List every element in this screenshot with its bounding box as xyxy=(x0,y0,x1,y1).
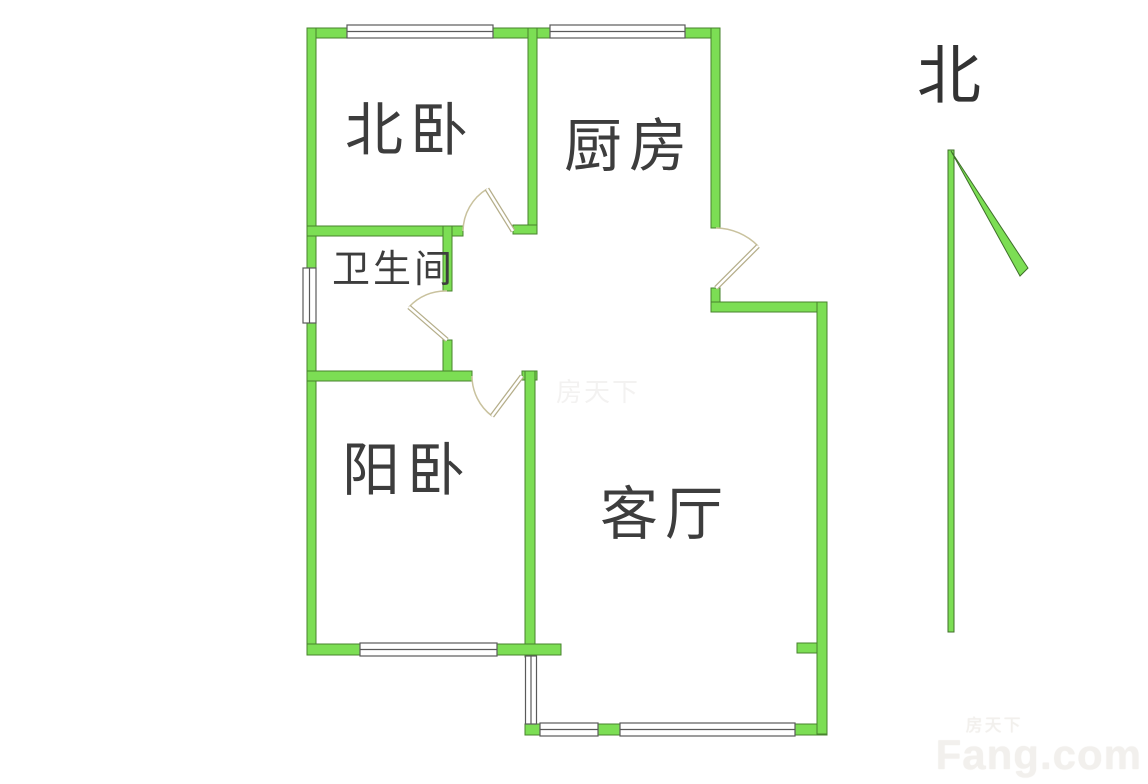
wall-livingroom-right xyxy=(817,302,827,734)
wall-sunbedroom-right xyxy=(525,371,535,657)
door-sun-bedroom-icon xyxy=(472,376,522,416)
wall-bedroom-kitchen-divider xyxy=(528,28,537,233)
compass-north-label: 北 xyxy=(917,44,981,108)
wall-balcony-right-stub xyxy=(797,643,817,653)
floorplan-canvas: 北卧 厨房 卫生间 阳卧 客厅 北 房天下 房天下 Fang.com xyxy=(0,0,1148,784)
wall-bathroom-bottom xyxy=(307,371,472,381)
room-label-kitchen: 厨房 xyxy=(564,118,694,176)
wall-left-exterior xyxy=(307,28,316,655)
door-north-bedroom-icon xyxy=(463,189,513,231)
wall-kitchen-right xyxy=(711,28,720,228)
wall-livingroom-top xyxy=(711,302,827,312)
door-bathroom-icon xyxy=(409,291,447,340)
room-label-living-room: 客厅 xyxy=(600,486,730,544)
wall-bedroom-bottom xyxy=(307,226,463,236)
center-watermark: 房天下 xyxy=(556,372,640,409)
door-entry-icon xyxy=(716,228,758,288)
site-watermark-en: Fang.com xyxy=(936,734,1142,776)
room-label-bathroom: 卫生间 xyxy=(332,251,455,289)
room-label-sun-bedroom: 阳卧 xyxy=(342,442,472,500)
room-label-north-bedroom: 北卧 xyxy=(345,102,475,160)
north-arrow-icon xyxy=(948,150,1028,632)
site-watermark: 房天下 Fang.com xyxy=(936,717,1142,776)
wall-bedroom-door-jamb xyxy=(513,225,537,234)
